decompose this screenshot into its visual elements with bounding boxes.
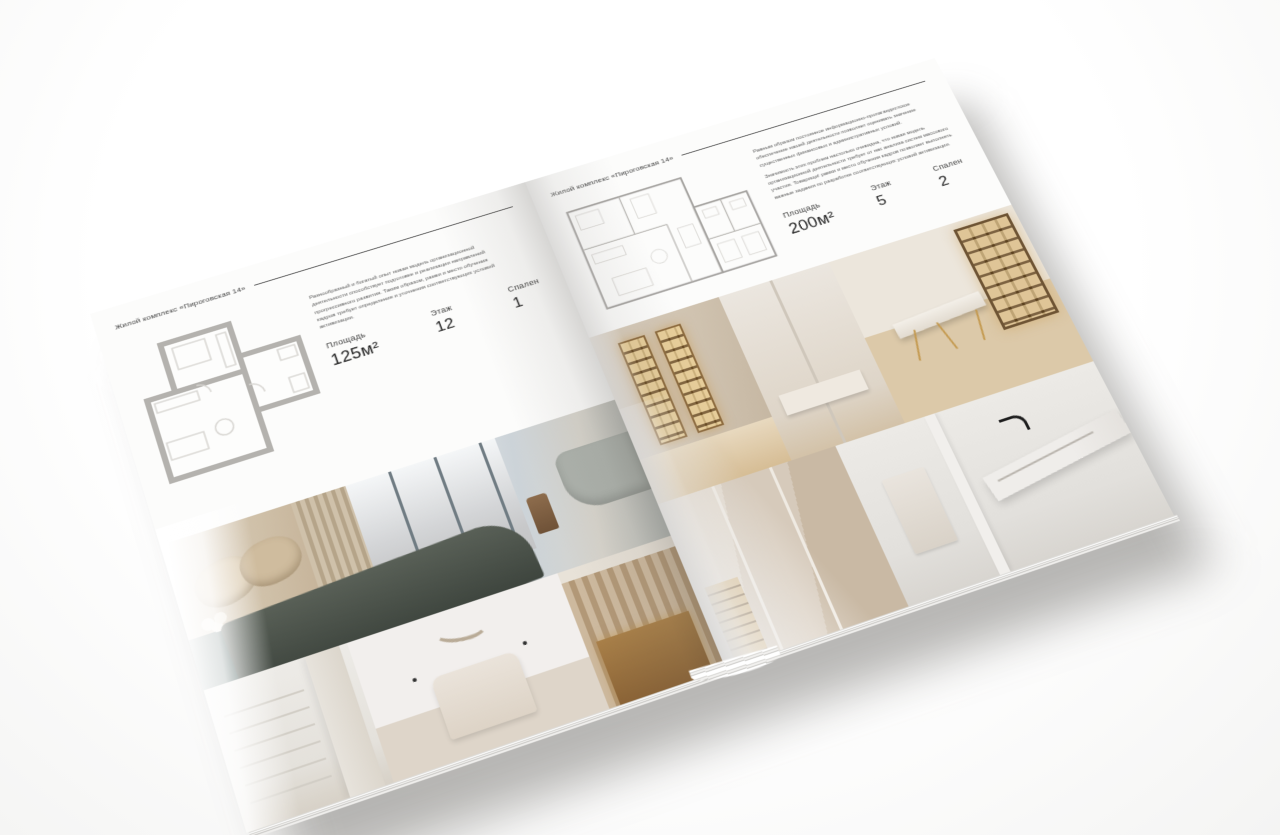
stat-floor: Этаж 12 <box>429 304 460 338</box>
sconce-shape <box>522 641 527 646</box>
stat-area: Площадь 200м² <box>781 198 838 238</box>
stat-floor-value: 5 <box>874 188 901 209</box>
gold-desk-leg <box>936 322 958 349</box>
stat-bedrooms: Спален 1 <box>507 277 549 313</box>
brochure-spread: Жилой комплекс «Пироговская 14» <box>90 58 1174 833</box>
vanity-counter-shape <box>778 369 868 415</box>
desk-top-shape <box>892 291 986 339</box>
scene-background: Жилой комплекс «Пироговская 14» <box>0 0 1280 835</box>
stat-floor-value: 12 <box>433 314 460 337</box>
headboard-arc-shape <box>432 613 489 646</box>
gold-desk-leg <box>975 310 985 340</box>
stat-floor: Этаж 5 <box>869 179 902 211</box>
bed-shape <box>431 651 538 741</box>
amber-bookcase-shape <box>953 213 1059 330</box>
gold-desk-leg <box>913 330 921 361</box>
stat-area: Площадь 125м² <box>325 328 382 370</box>
floor-plan-1-bedroom <box>122 298 340 490</box>
towel-shape <box>882 467 959 555</box>
sconce-shape <box>412 678 417 683</box>
stat-bedrooms: Спален 2 <box>931 157 973 191</box>
side-table-shape <box>526 492 560 535</box>
black-faucet-shape <box>998 413 1030 438</box>
